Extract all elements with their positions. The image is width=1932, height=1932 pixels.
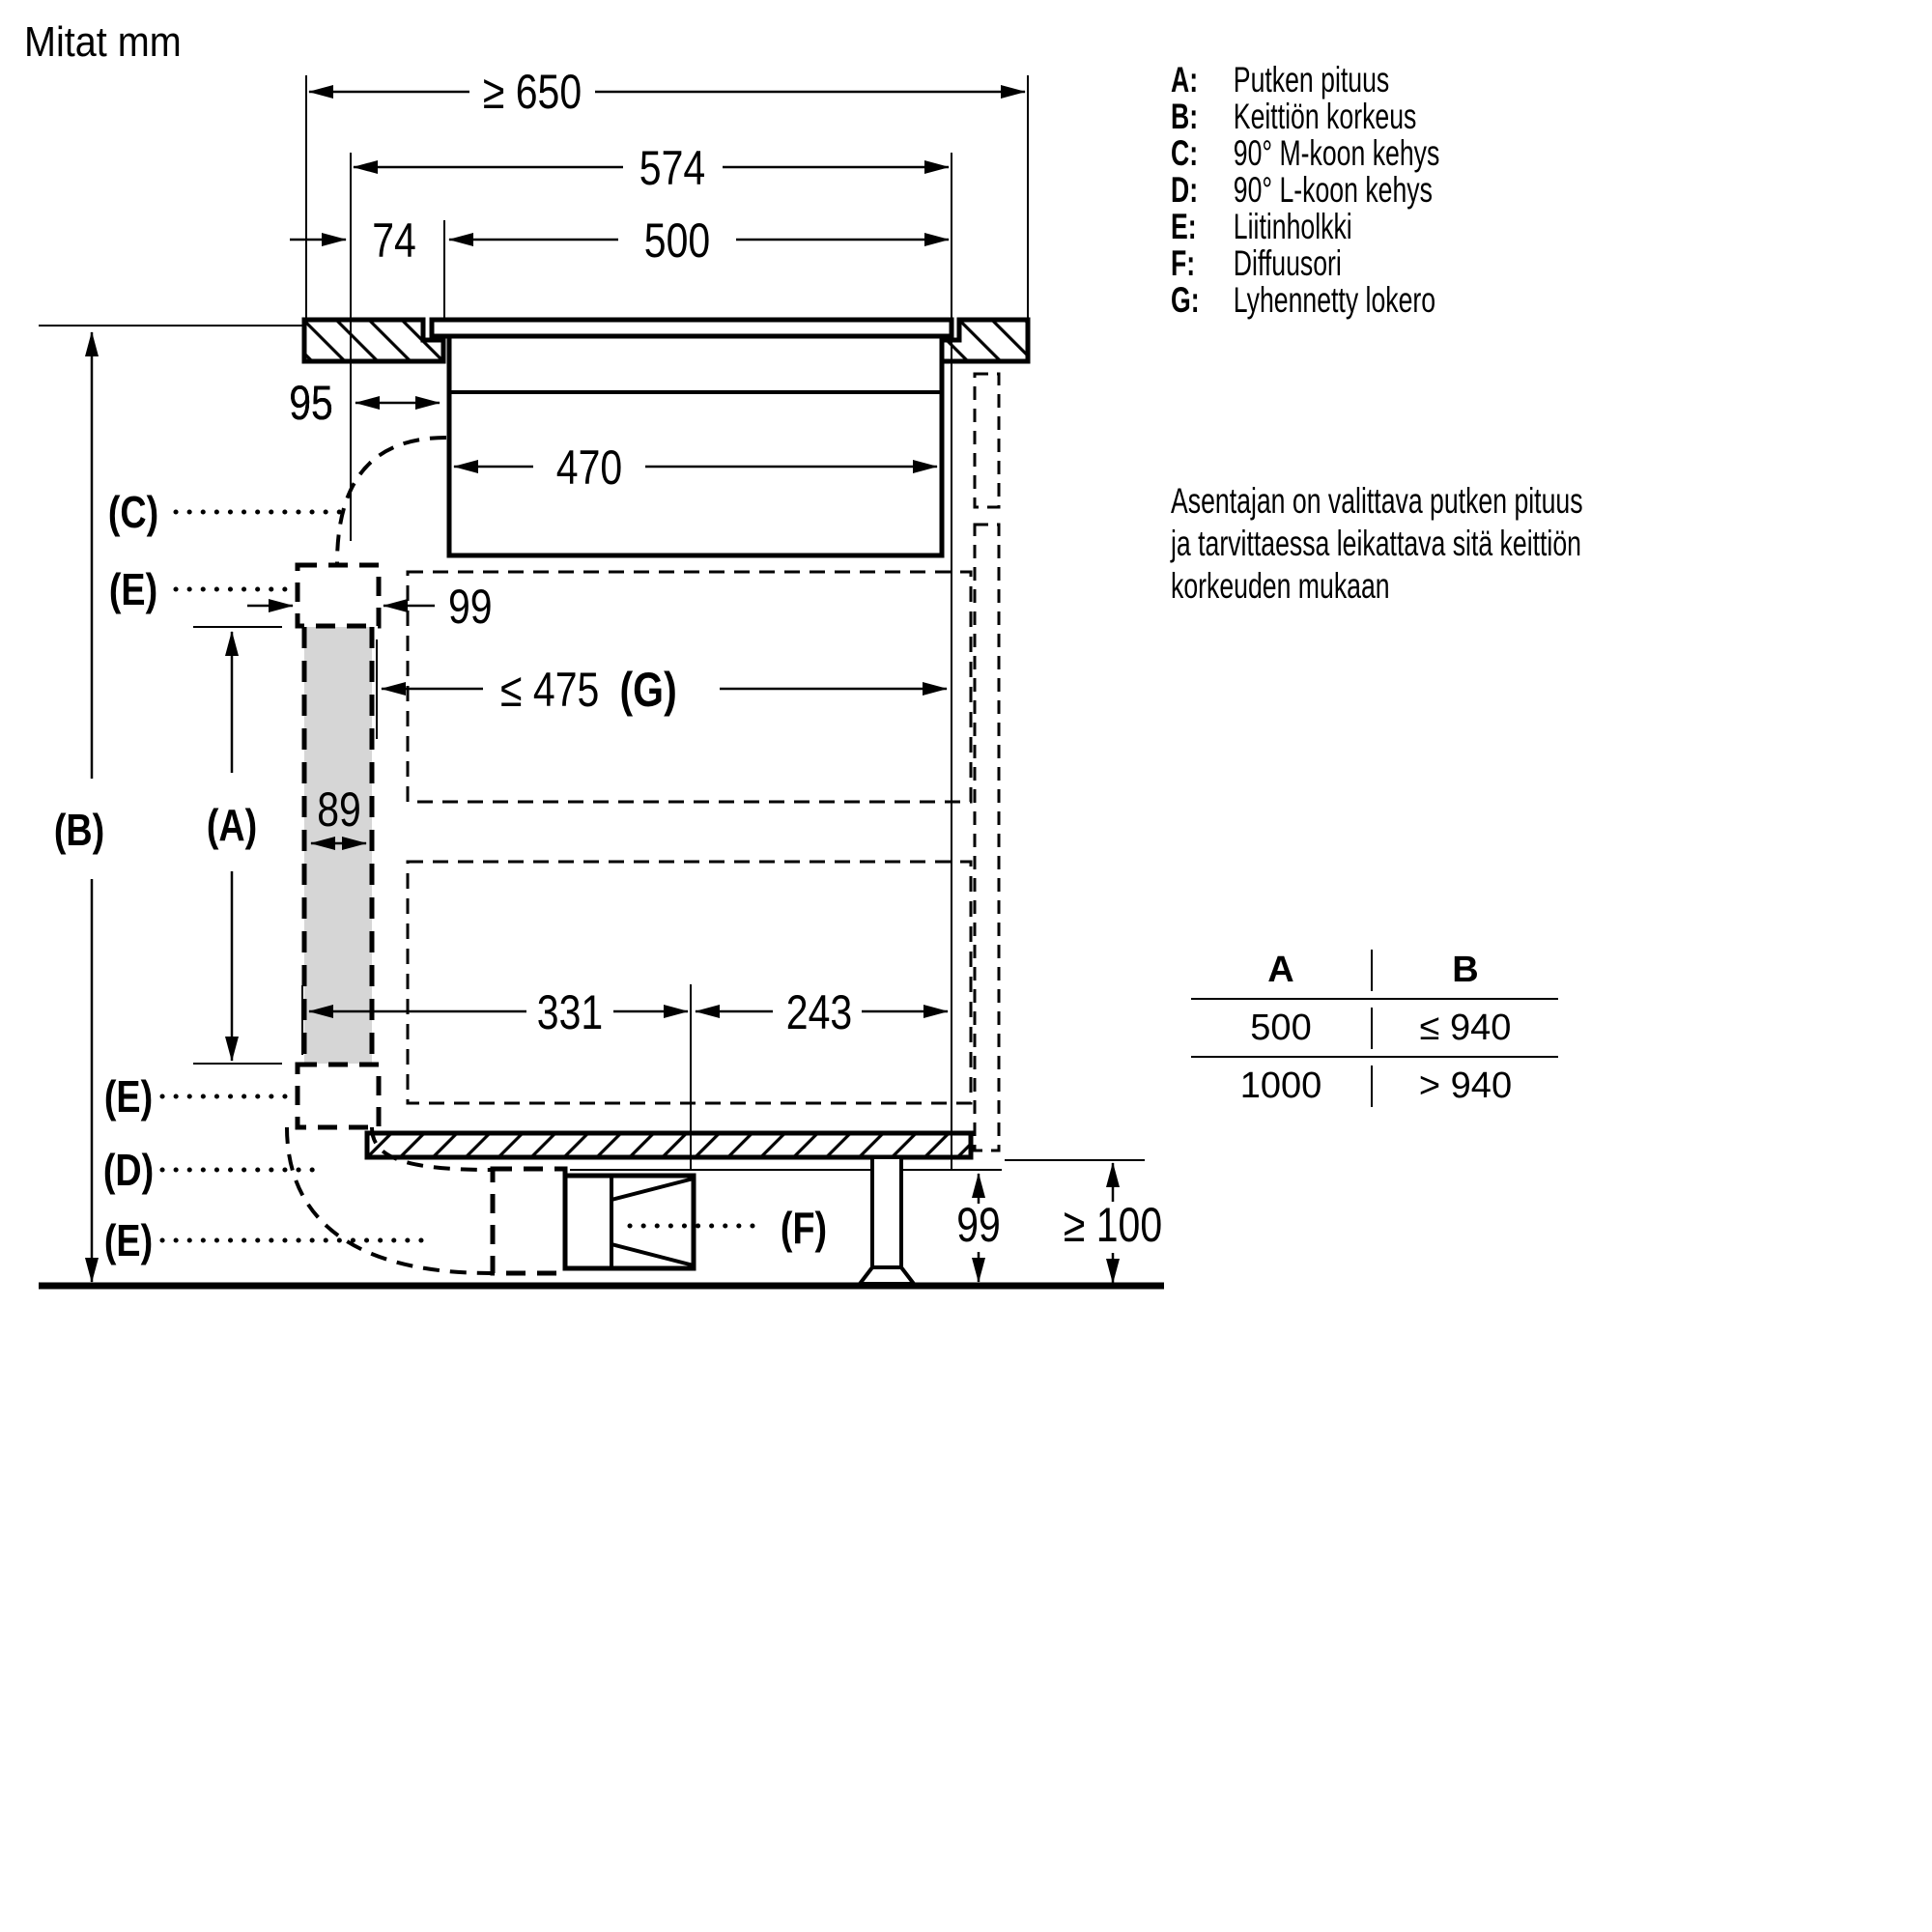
legend-label: 90° M-koon kehys [1234,135,1440,172]
callout-c: (C) [108,487,158,536]
legend-item-g: G: Lyhennetty lokero [1171,282,1699,319]
connector-sleeve-top [298,565,379,626]
legend-item-f: F: Diffuusori [1171,245,1699,282]
table-row: 500 ≤ 940 [1191,1000,1558,1058]
hob-glass-panel [432,320,952,336]
dim-diffuser-height: 99 [956,1198,1001,1252]
table-row: 1000 > 940 [1191,1058,1558,1114]
dim-offset-74: 74 [372,213,416,268]
dim-95: 95 [289,376,333,430]
dim-min-width: ≥ 650 [483,65,582,119]
dim-floor-clearance: ≥ 100 [1064,1198,1162,1252]
dim-duct-width: 89 [317,782,361,837]
note-line-3: korkeuden mukaan [1171,565,1699,608]
legend-label: Keittiön korkeus [1234,99,1417,135]
pipe-length-table: A B 500 ≤ 940 1000 > 940 [1191,942,1558,1114]
note-line-1: Asentajan on valittava putken pituus [1171,480,1699,523]
legend-key: C: [1171,135,1234,172]
legend-item-e: E: Liitinholkki [1171,209,1699,245]
legend-key: D: [1171,172,1234,209]
drawing-title: Mitat mm [24,17,182,65]
table-cell-b: ≤ 940 [1371,1008,1558,1049]
callout-f: (F) [781,1203,827,1252]
rear-duct-channel [975,374,999,1151]
table-cell-a: 500 [1191,1008,1371,1049]
callout-b: (B) [54,805,104,854]
bend-frame-top-M [337,438,446,563]
legend-key: G: [1171,282,1234,319]
legend-item-a: A: Putken pituus [1171,62,1699,99]
dim-243: 243 [786,985,852,1039]
legend: A: Putken pituus B: Keittiön korkeus C: … [1171,62,1699,319]
legend-item-b: B: Keittiön korkeus [1171,99,1699,135]
worktop-section-left [304,320,443,361]
dim-g-value: ≤ 475 [500,663,599,717]
dim-shortened-compartment: ≤ 475 (G) [500,663,677,717]
worktop-section-right [942,320,1028,361]
dim-cutout-width: 574 [639,141,705,195]
legend-key: A: [1171,62,1234,99]
legend-key: F: [1171,245,1234,282]
installation-sheet: Mitat mm [0,0,1932,1932]
table-header-b: B [1371,950,1558,991]
duct-pipe-fill [304,627,372,1064]
dim-connector-width: 99 [448,580,493,634]
cabinet-bottom-shelf [367,1133,971,1157]
diffuser [565,1176,694,1268]
note-line-2: ja tarvittaessa leikattava sitä keittiön [1171,523,1699,565]
legend-label: Liitinholkki [1234,209,1352,245]
table-cell-a: 1000 [1191,1065,1371,1107]
hob-body [449,336,942,555]
dim-g-label: (G) [620,663,677,717]
legend-key: B: [1171,99,1234,135]
table-header-row: A B [1191,942,1558,1000]
connector-sleeve-diffuser [493,1169,565,1273]
callout-d: (D) [103,1145,154,1194]
table-header-a: A [1191,950,1371,991]
connector-sleeve-bottom [298,1065,379,1127]
legend-label: 90° L-koon kehys [1234,172,1433,209]
legend-label: Putken pituus [1234,62,1389,99]
callout-e-mid: (E) [104,1071,153,1121]
legend-label: Lyhennetty lokero [1234,282,1435,319]
installer-note: Asentajan on valittava putken pituus ja … [1171,480,1699,608]
dim-body-width: 470 [556,440,622,495]
leg-foot [860,1267,914,1284]
callout-e-bottom: (E) [104,1215,153,1264]
dim-inner-cutout-width: 500 [644,213,710,268]
adjustable-leg [872,1157,901,1267]
legend-label: Diffuusori [1234,245,1342,282]
callout-e-top: (E) [109,564,157,613]
table-cell-b: > 940 [1371,1065,1558,1107]
legend-key: E: [1171,209,1234,245]
legend-item-c: C: 90° M-koon kehys [1171,135,1699,172]
callout-a: (A) [207,800,257,849]
legend-item-d: D: 90° L-koon kehys [1171,172,1699,209]
dim-331: 331 [537,985,603,1039]
shortened-compartment-boxes [408,572,971,1103]
